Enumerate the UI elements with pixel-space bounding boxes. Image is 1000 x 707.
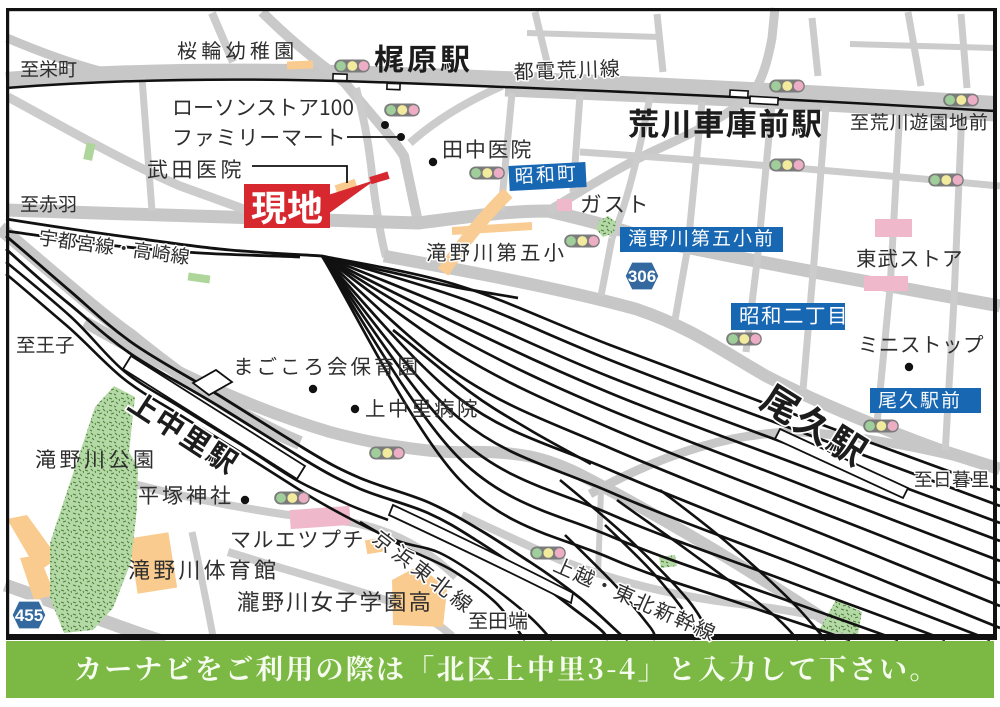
svg-text:306: 306	[628, 267, 656, 286]
svg-text:455: 455	[15, 606, 43, 625]
